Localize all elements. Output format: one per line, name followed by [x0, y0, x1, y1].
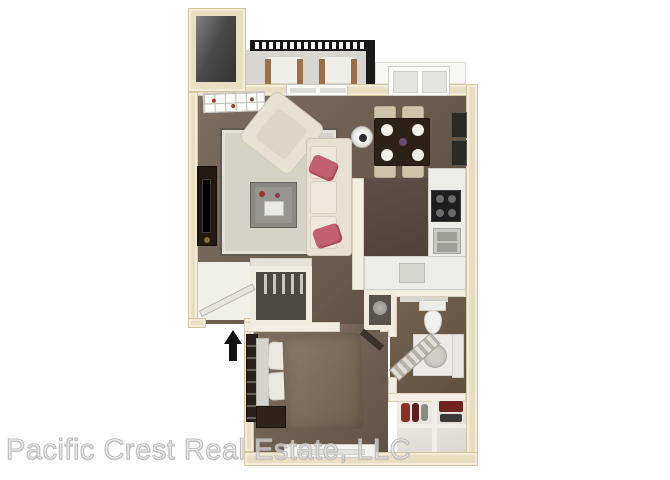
dining-table [374, 118, 430, 166]
water-heater-closet [364, 290, 396, 330]
wall-right [466, 84, 478, 466]
plate-icon [412, 124, 424, 136]
kitchen-counter-bottom [364, 256, 466, 290]
dining-window [388, 66, 450, 96]
bath-ledge [452, 334, 464, 378]
hanging-clothes-icon [401, 403, 410, 422]
chair-arm-icon [351, 59, 357, 85]
tray-icon [264, 201, 284, 216]
window-pane [320, 88, 346, 93]
nightstand [256, 406, 286, 428]
transom-shelf-grid [203, 91, 266, 113]
patio-chair [266, 56, 302, 84]
stove-cooktop [431, 190, 461, 222]
sofa-cushion [310, 181, 337, 214]
decor-item-icon [275, 193, 280, 198]
half-wall-kitchen [352, 178, 364, 290]
wall-art-frame [451, 112, 467, 138]
burner-icon [448, 209, 456, 217]
speaker-icon [204, 237, 210, 243]
closet-shelf-horizontal [397, 424, 466, 428]
decor-dot [212, 99, 216, 103]
kitchen-floor [364, 178, 428, 258]
floor-plan-image: Pacific Crest Real Estate, LLC [0, 0, 670, 480]
burner-icon [436, 195, 444, 203]
tv-console [197, 166, 217, 246]
bed-headboard [256, 338, 269, 406]
floor-lamp-icon [351, 126, 373, 148]
chair-arm-icon [297, 59, 303, 85]
plate-icon [381, 149, 393, 161]
storage-closet-interior [196, 16, 236, 82]
burner-icon [448, 195, 456, 203]
armchair-cushion [255, 107, 308, 160]
counter-inset [399, 263, 425, 283]
bed-comforter [282, 333, 363, 432]
burner-icon [436, 209, 444, 217]
balcony-slider-window [286, 84, 348, 96]
sink-basin [437, 232, 457, 241]
window-pane [422, 71, 447, 93]
coffee-table [250, 182, 297, 228]
balcony-railing-top [250, 40, 370, 51]
watermark-text: Pacific Crest Real Estate, LLC [6, 434, 411, 467]
hanging-clothes-icon [412, 403, 419, 422]
balcony-railing-right [366, 40, 375, 88]
window-pane [393, 71, 418, 93]
arrow-stem [229, 343, 237, 361]
plate-icon [381, 124, 393, 136]
kitchen-sink [433, 228, 461, 254]
tv-icon [202, 179, 211, 233]
plate-icon [412, 149, 424, 161]
chair-arm-icon [265, 59, 271, 85]
decor-dot [250, 97, 254, 101]
hanging-clothes-icon [258, 274, 304, 294]
centerpiece-icon [399, 138, 407, 146]
chair-arm-icon [319, 59, 325, 85]
decor-item-icon [259, 191, 265, 197]
entry-arrow-icon [224, 330, 242, 362]
wall-entry-bottom-left [188, 318, 206, 328]
folded-clothes-icon [439, 401, 463, 412]
sink-basin [437, 243, 457, 252]
arrow-head [224, 330, 242, 344]
storage-closet [188, 8, 246, 92]
hanging-clothes-icon [421, 404, 428, 421]
window-pane [290, 88, 316, 93]
water-heater-icon [373, 301, 387, 315]
decor-dot [231, 104, 235, 108]
coat-closet [250, 266, 312, 326]
wall-art-frame [451, 140, 467, 166]
folded-clothes-icon [440, 414, 462, 422]
lamp-center [359, 134, 367, 142]
patio-chair [320, 56, 356, 84]
